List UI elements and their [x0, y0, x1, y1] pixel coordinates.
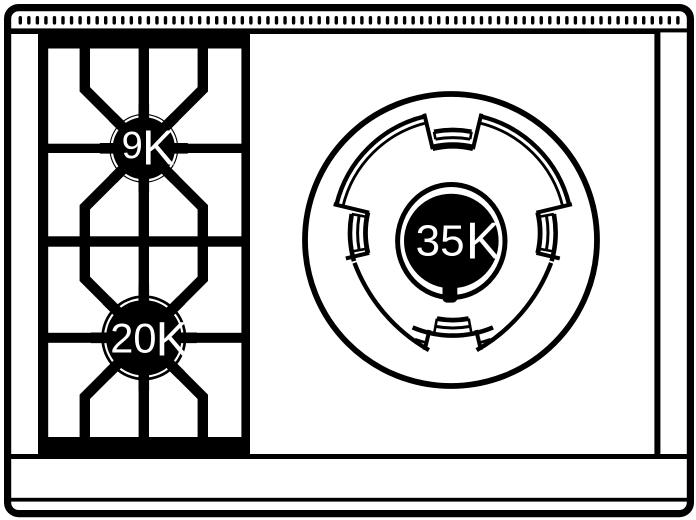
svg-text:K: K: [466, 213, 501, 271]
svg-text:K: K: [142, 121, 175, 175]
svg-text:K: K: [156, 312, 188, 366]
svg-text:9: 9: [122, 125, 143, 167]
svg-text:20: 20: [110, 314, 156, 361]
svg-text:35: 35: [416, 216, 465, 265]
